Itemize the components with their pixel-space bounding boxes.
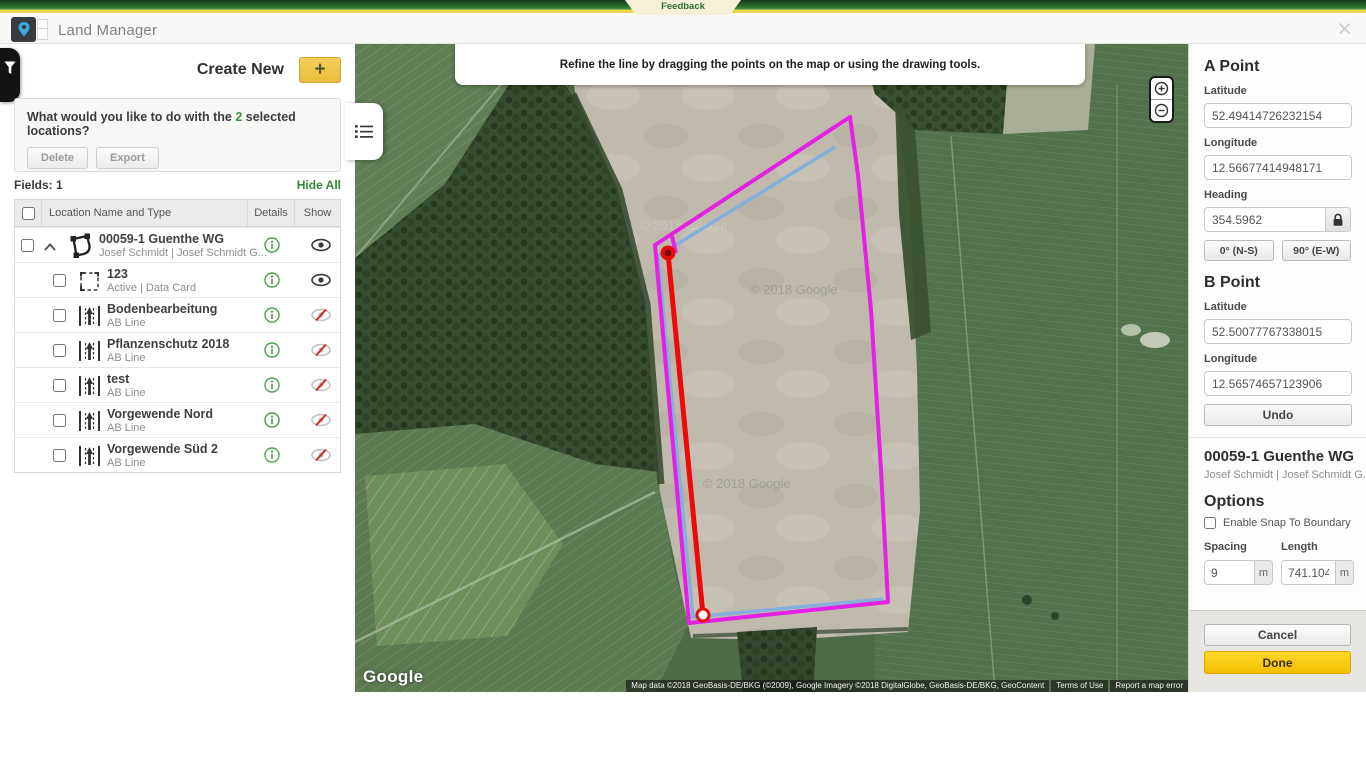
spacing-unit: m: [1255, 560, 1273, 585]
selection-prompt: What would you like to do with the 2 sel…: [27, 110, 328, 138]
b-latitude-label: Latitude: [1204, 301, 1351, 313]
location-subtitle: AB Line: [107, 421, 213, 435]
selected-field-subtitle: Josef Schmidt | Josef Schmidt G...: [1204, 469, 1351, 481]
app-header: Land Manager ×: [0, 15, 1366, 44]
table-row[interactable]: Vorgewende Süd 2 AB Line: [15, 437, 340, 472]
row-checkbox[interactable]: [53, 274, 66, 287]
close-icon[interactable]: ×: [1337, 16, 1352, 42]
panel-footer: Cancel Done: [1189, 610, 1366, 692]
select-all-checkbox[interactable]: [22, 207, 35, 220]
funnel-icon: [4, 61, 16, 75]
a-latitude-label: Latitude: [1204, 85, 1351, 97]
ab-line-icon: [77, 443, 102, 474]
location-subtitle: AB Line: [107, 351, 229, 365]
row-checkbox[interactable]: [21, 239, 34, 252]
create-new-label: Create New: [197, 61, 284, 79]
length-unit: m: [1336, 560, 1354, 585]
report-error-link[interactable]: Report a map error: [1110, 680, 1188, 692]
heading-input[interactable]: [1204, 207, 1326, 232]
filter-tab[interactable]: [0, 48, 20, 102]
heading-ew-button[interactable]: 90° (E-W): [1282, 240, 1352, 261]
map-zoom-control: [1149, 76, 1174, 123]
visibility-eye-off-icon[interactable]: [310, 308, 332, 327]
app-title: Land Manager: [58, 22, 157, 39]
map-instruction-banner: Refine the line by dragging the points o…: [455, 44, 1085, 85]
map-watermark: © 2018 Google: [703, 476, 791, 491]
a-point-title: A Point: [1204, 58, 1351, 76]
satellite-map[interactable]: © 2018 Google © 2018 Google © 2018 Googl…: [355, 44, 1188, 692]
google-logo: Google: [363, 667, 423, 687]
location-name: test: [107, 372, 146, 386]
dashed-boundary-icon: [77, 268, 102, 299]
ab-line-icon: [77, 303, 102, 334]
sidebar: Create New + What would you like to do w…: [0, 44, 355, 692]
visibility-eye-off-icon[interactable]: [310, 378, 332, 397]
ab-line-editor-panel: A Point Latitude Longitude Heading 0° (N…: [1188, 44, 1366, 692]
list-icon: [355, 124, 373, 139]
map-imagery: © 2018 Google © 2018 Google © 2018 Googl…: [355, 44, 1188, 692]
collapse-chevron-icon[interactable]: [43, 239, 57, 257]
list-glyph: [37, 19, 48, 40]
a-longitude-input[interactable]: [1204, 155, 1352, 180]
cancel-button[interactable]: Cancel: [1204, 624, 1351, 646]
length-label: Length: [1281, 541, 1318, 553]
location-subtitle: Josef Schmidt | Josef Schmidt G...: [99, 246, 267, 260]
visibility-eye-icon[interactable]: [310, 238, 332, 257]
create-new-button[interactable]: +: [299, 57, 341, 83]
location-subtitle: AB Line: [107, 456, 218, 470]
row-checkbox[interactable]: [53, 309, 66, 322]
length-input[interactable]: [1281, 560, 1336, 585]
b-point-title: B Point: [1204, 274, 1351, 292]
table-row[interactable]: Pflanzenschutz 2018 AB Line: [15, 332, 340, 367]
feedback-tab[interactable]: Feedback: [625, 0, 741, 15]
spacing-input[interactable]: [1204, 560, 1255, 585]
snap-to-boundary-checkbox[interactable]: [1204, 517, 1216, 529]
visibility-eye-off-icon[interactable]: [310, 448, 332, 467]
table-header: Location Name and Type Details Show: [15, 200, 340, 227]
spacing-label: Spacing: [1204, 541, 1281, 553]
row-checkbox[interactable]: [53, 344, 66, 357]
land-manager-window: Feedback Land Manager × Create New +: [0, 0, 1366, 692]
details-info-icon[interactable]: [264, 447, 280, 468]
attribution-text: Map data ©2018 GeoBasis-DE/BKG (©2009), …: [626, 680, 1049, 692]
heading-label: Heading: [1204, 189, 1351, 201]
boundary-polygon-icon: [67, 232, 94, 264]
lock-icon: [1332, 213, 1344, 227]
heading-lock-button[interactable]: [1326, 207, 1351, 232]
b-longitude-label: Longitude: [1204, 353, 1351, 365]
ab-line-icon: [77, 373, 102, 404]
zoom-out-icon[interactable]: [1151, 99, 1172, 121]
map-attribution: Map data ©2018 GeoBasis-DE/BKG (©2009), …: [626, 680, 1188, 692]
delete-button[interactable]: Delete: [27, 147, 88, 169]
details-info-icon[interactable]: [264, 307, 280, 328]
location-subtitle: Active | Data Card: [107, 281, 196, 295]
b-point-marker[interactable]: [697, 609, 709, 621]
locations-table: Location Name and Type Details Show: [14, 199, 341, 473]
location-name: Bodenbearbeitung: [107, 302, 217, 316]
hide-all-link[interactable]: Hide All: [297, 178, 341, 192]
visibility-eye-off-icon[interactable]: [310, 343, 332, 362]
ab-line-icon: [77, 408, 102, 439]
location-subtitle: AB Line: [107, 316, 217, 330]
zoom-in-icon[interactable]: [1151, 78, 1172, 99]
undo-button[interactable]: Undo: [1204, 404, 1352, 426]
location-name: 00059-1 Guenthe WG: [99, 232, 267, 246]
location-name: Vorgewende Süd 2: [107, 442, 218, 456]
details-info-icon[interactable]: [264, 377, 280, 398]
map-watermark: © 2018 Google: [750, 282, 838, 297]
map-pin-icon: [11, 17, 36, 42]
column-details: Details: [247, 200, 294, 226]
ab-line-icon: [77, 338, 102, 369]
snap-to-boundary-label: Enable Snap To Boundary: [1223, 517, 1351, 529]
row-checkbox[interactable]: [53, 449, 66, 462]
done-button[interactable]: Done: [1204, 651, 1351, 674]
selected-field-name: 00059-1 Guenthe WG: [1204, 448, 1351, 465]
location-name: 123: [107, 267, 196, 281]
b-longitude-input[interactable]: [1204, 371, 1352, 396]
table-row[interactable]: test AB Line: [15, 367, 340, 402]
a-longitude-label: Longitude: [1204, 137, 1351, 149]
heading-ns-button[interactable]: 0° (N-S): [1204, 240, 1274, 261]
row-checkbox[interactable]: [53, 379, 66, 392]
app-logo: [11, 17, 51, 42]
details-info-icon[interactable]: [264, 412, 280, 433]
b-latitude-input[interactable]: [1204, 319, 1352, 344]
selection-actions-panel: What would you like to do with the 2 sel…: [14, 98, 341, 172]
table-row[interactable]: Vorgewende Nord AB Line: [15, 402, 340, 437]
options-title: Options: [1204, 493, 1351, 511]
location-name: Vorgewende Nord: [107, 407, 213, 421]
visibility-eye-icon[interactable]: [310, 273, 332, 292]
location-name: Pflanzenschutz 2018: [107, 337, 229, 351]
visibility-eye-off-icon[interactable]: [310, 413, 332, 432]
details-info-icon[interactable]: [264, 272, 280, 293]
row-checkbox[interactable]: [53, 414, 66, 427]
a-latitude-input[interactable]: [1204, 103, 1352, 128]
column-show: Show: [294, 200, 340, 226]
export-button[interactable]: Export: [96, 147, 159, 169]
layers-list-tab[interactable]: [345, 103, 383, 160]
fields-count-label: Fields: 1: [14, 178, 63, 192]
table-row[interactable]: 123 Active | Data Card: [15, 262, 340, 297]
terms-of-use-link[interactable]: Terms of Use: [1051, 680, 1108, 692]
location-subtitle: AB Line: [107, 386, 146, 400]
details-info-icon[interactable]: [264, 342, 280, 363]
table-row[interactable]: 00059-1 Guenthe WG Josef Schmidt | Josef…: [15, 227, 340, 262]
table-row[interactable]: Bodenbearbeitung AB Line: [15, 297, 340, 332]
details-info-icon[interactable]: [264, 237, 280, 258]
divider: [1189, 437, 1366, 438]
column-name: Location Name and Type: [41, 200, 247, 226]
